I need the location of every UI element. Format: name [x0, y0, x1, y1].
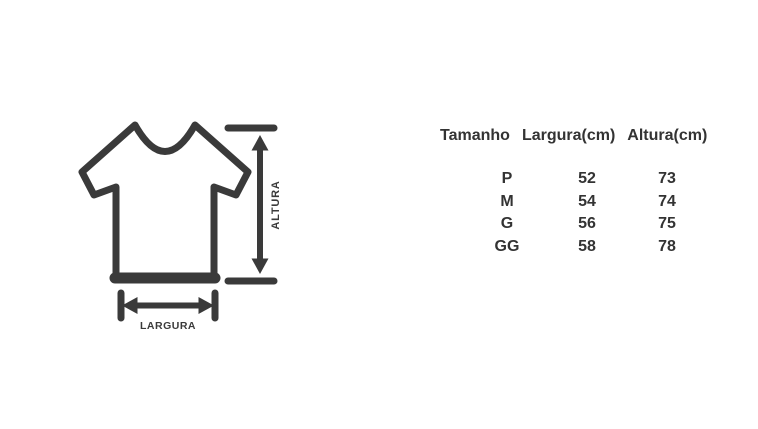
header-largura: Largura(cm): [522, 126, 615, 145]
table-row: GG 58 78: [477, 236, 730, 259]
cell-tamanho: GG: [477, 236, 537, 259]
size-table-body: P 52 73 M 54 74 G 56 75 GG 58 78: [440, 168, 730, 258]
cell-largura: 54: [557, 191, 617, 214]
tshirt-icon: [82, 125, 248, 278]
width-label: LARGURA: [140, 320, 196, 332]
height-arrow-down-head: [252, 259, 269, 275]
size-table-header: Tamanho Largura(cm) Altura(cm): [440, 126, 730, 145]
height-label: ALTURA: [270, 180, 282, 229]
table-row: P 52 73: [477, 168, 730, 191]
height-measure: ALTURA: [228, 128, 282, 281]
cell-largura: 56: [557, 213, 617, 236]
table-row: G 56 75: [477, 213, 730, 236]
table-row: M 54 74: [477, 191, 730, 214]
cell-tamanho: G: [477, 213, 537, 236]
cell-altura: 75: [637, 213, 697, 236]
header-tamanho: Tamanho: [440, 126, 510, 145]
size-chart-image: ALTURA LARGURA Tamanho Largura(cm) Altur…: [0, 0, 758, 429]
cell-largura: 52: [557, 168, 617, 191]
cell-altura: 73: [637, 168, 697, 191]
cell-tamanho: M: [477, 191, 537, 214]
tshirt-outline: [82, 125, 248, 278]
cell-altura: 74: [637, 191, 697, 214]
height-arrow-up-head: [252, 135, 269, 151]
cell-altura: 78: [637, 236, 697, 259]
header-altura: Altura(cm): [627, 126, 707, 145]
size-table: Tamanho Largura(cm) Altura(cm) P 52 73 M…: [440, 126, 730, 258]
cell-largura: 58: [557, 236, 617, 259]
cell-tamanho: P: [477, 168, 537, 191]
tshirt-measure-diagram: ALTURA LARGURA: [60, 100, 300, 340]
width-measure: LARGURA: [121, 293, 215, 332]
